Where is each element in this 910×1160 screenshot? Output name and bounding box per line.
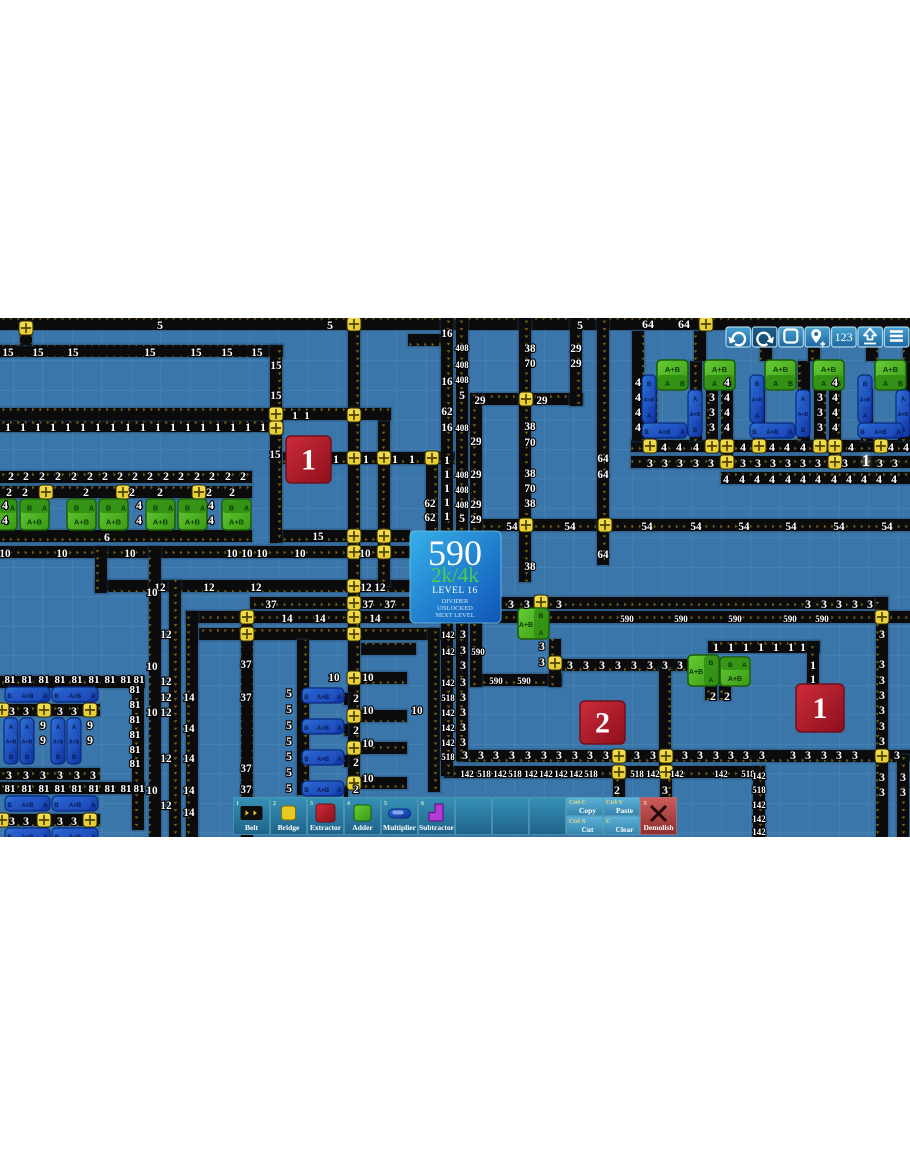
svg-text:B: B bbox=[153, 506, 158, 513]
svg-text:3: 3 bbox=[556, 748, 562, 762]
svg-text:14: 14 bbox=[183, 785, 195, 797]
svg-text:3: 3 bbox=[599, 658, 605, 672]
svg-text:A×B: A×B bbox=[690, 412, 701, 418]
svg-text:3: 3 bbox=[821, 597, 827, 611]
svg-text:1: 1 bbox=[245, 420, 251, 434]
svg-text:4: 4 bbox=[208, 513, 214, 527]
svg-text:29: 29 bbox=[470, 436, 482, 448]
svg-text:3: 3 bbox=[682, 748, 688, 762]
svg-text:408: 408 bbox=[455, 343, 469, 353]
svg-text:A+B: A+B bbox=[883, 365, 899, 374]
svg-text:B: B bbox=[304, 788, 309, 794]
svg-text:3: 3 bbox=[71, 704, 77, 718]
svg-text:518: 518 bbox=[584, 769, 598, 779]
svg-text:10: 10 bbox=[146, 707, 158, 719]
svg-text:29: 29 bbox=[470, 469, 482, 481]
svg-text:518: 518 bbox=[508, 769, 522, 779]
svg-text:1: 1 bbox=[444, 481, 450, 495]
svg-text:5: 5 bbox=[286, 718, 292, 732]
svg-text:1: 1 bbox=[292, 410, 298, 422]
svg-text:142: 142 bbox=[441, 630, 455, 640]
svg-text:14: 14 bbox=[183, 807, 195, 819]
svg-text:6: 6 bbox=[421, 801, 424, 807]
svg-text:29: 29 bbox=[470, 499, 482, 511]
svg-text:38: 38 bbox=[524, 561, 536, 573]
svg-text:2: 2 bbox=[273, 801, 276, 807]
svg-text:A+B: A+B bbox=[712, 365, 728, 374]
svg-text:3: 3 bbox=[770, 456, 776, 470]
svg-text:3: 3 bbox=[815, 456, 821, 470]
svg-text:3: 3 bbox=[879, 785, 885, 799]
svg-text:3: 3 bbox=[677, 658, 683, 672]
svg-text:142: 142 bbox=[554, 769, 568, 779]
svg-text:16: 16 bbox=[441, 376, 453, 388]
svg-text:2: 2 bbox=[240, 469, 246, 483]
svg-text:3: 3 bbox=[709, 390, 715, 404]
svg-text:15: 15 bbox=[190, 347, 202, 359]
svg-text:81: 81 bbox=[39, 783, 50, 795]
svg-text:3: 3 bbox=[631, 658, 637, 672]
svg-text:3: 3 bbox=[879, 673, 885, 687]
svg-text:10: 10 bbox=[256, 548, 268, 560]
svg-text:408: 408 bbox=[455, 485, 469, 495]
svg-text:B: B bbox=[56, 755, 61, 761]
svg-text:3: 3 bbox=[460, 643, 466, 657]
svg-text:1: 1 bbox=[230, 420, 236, 434]
svg-text:A×B: A×B bbox=[658, 430, 671, 436]
svg-text:B: B bbox=[74, 506, 79, 513]
svg-text:A: A bbox=[121, 506, 126, 513]
svg-text:A: A bbox=[168, 506, 173, 513]
svg-text:2: 2 bbox=[209, 469, 215, 483]
svg-text:1: 1 bbox=[800, 640, 806, 654]
svg-text:4: 4 bbox=[815, 472, 821, 486]
svg-text:A×B: A×B bbox=[53, 740, 64, 746]
svg-text:B: B bbox=[728, 662, 733, 669]
svg-text:2: 2 bbox=[23, 469, 29, 483]
svg-text:142: 142 bbox=[670, 769, 684, 779]
svg-text:81: 81 bbox=[134, 783, 145, 795]
svg-text:A×B: A×B bbox=[860, 398, 871, 404]
svg-text:Clear: Clear bbox=[616, 825, 635, 834]
svg-text:B: B bbox=[860, 430, 865, 436]
svg-text:LEVEL 16: LEVEL 16 bbox=[432, 586, 478, 596]
svg-text:3: 3 bbox=[821, 748, 827, 762]
svg-text:37: 37 bbox=[240, 784, 252, 796]
svg-text:1: 1 bbox=[35, 420, 41, 434]
svg-text:A: A bbox=[755, 414, 760, 420]
svg-text:2: 2 bbox=[83, 485, 89, 499]
svg-text:2: 2 bbox=[71, 469, 77, 483]
svg-text:Adder: Adder bbox=[352, 823, 373, 832]
svg-text:81: 81 bbox=[130, 729, 141, 741]
svg-text:81: 81 bbox=[55, 674, 66, 686]
svg-text:2: 2 bbox=[39, 469, 45, 483]
svg-text:590: 590 bbox=[783, 614, 797, 624]
svg-text:A×B: A×B bbox=[69, 740, 80, 746]
svg-text:2: 2 bbox=[6, 485, 12, 499]
svg-text:9: 9 bbox=[40, 718, 46, 732]
svg-text:A: A bbox=[337, 695, 342, 701]
svg-text:4: 4 bbox=[831, 472, 837, 486]
svg-text:1: 1 bbox=[95, 420, 101, 434]
svg-text:81: 81 bbox=[89, 674, 100, 686]
svg-text:3: 3 bbox=[755, 456, 761, 470]
svg-text:38: 38 bbox=[524, 498, 536, 510]
svg-text:4: 4 bbox=[723, 472, 729, 486]
svg-text:A×B: A×B bbox=[22, 740, 33, 746]
svg-text:3: 3 bbox=[57, 768, 63, 782]
svg-text:3: 3 bbox=[634, 748, 640, 762]
svg-text:3: 3 bbox=[662, 658, 668, 672]
svg-text:3: 3 bbox=[894, 748, 900, 762]
svg-text:142: 142 bbox=[569, 769, 583, 779]
svg-text:A: A bbox=[539, 630, 544, 637]
svg-text:10: 10 bbox=[362, 773, 374, 785]
svg-text:A: A bbox=[742, 662, 747, 669]
svg-text:3: 3 bbox=[713, 748, 719, 762]
svg-text:1: 1 bbox=[743, 640, 749, 654]
svg-text:4: 4 bbox=[784, 440, 790, 454]
svg-text:64: 64 bbox=[597, 549, 609, 561]
svg-text:10: 10 bbox=[294, 548, 306, 560]
svg-text:4: 4 bbox=[347, 801, 350, 807]
svg-text:37: 37 bbox=[384, 599, 396, 611]
svg-text:X: X bbox=[643, 801, 648, 807]
svg-text:4: 4 bbox=[754, 472, 760, 486]
svg-text:A: A bbox=[863, 414, 868, 420]
svg-text:B: B bbox=[788, 381, 793, 388]
svg-text:81: 81 bbox=[130, 714, 141, 726]
svg-text:3: 3 bbox=[805, 597, 811, 611]
svg-text:5: 5 bbox=[459, 388, 465, 402]
svg-text:A: A bbox=[244, 506, 249, 513]
svg-text:4: 4 bbox=[832, 375, 838, 389]
svg-text:10: 10 bbox=[56, 548, 68, 560]
svg-text:4: 4 bbox=[635, 420, 641, 434]
svg-text:3: 3 bbox=[900, 785, 906, 799]
svg-text:3: 3 bbox=[460, 627, 466, 641]
svg-text:4: 4 bbox=[876, 472, 882, 486]
svg-text:1: 1 bbox=[80, 420, 86, 434]
svg-text:1: 1 bbox=[392, 452, 398, 466]
svg-text:4: 4 bbox=[861, 472, 867, 486]
svg-text:3: 3 bbox=[71, 814, 77, 828]
svg-text:1: 1 bbox=[444, 495, 450, 509]
svg-text:B: B bbox=[752, 430, 757, 436]
svg-text:A: A bbox=[200, 506, 205, 513]
svg-text:5: 5 bbox=[286, 765, 292, 779]
svg-text:3: 3 bbox=[460, 705, 466, 719]
svg-text:2: 2 bbox=[225, 469, 231, 483]
svg-text:A+B: A+B bbox=[229, 518, 245, 527]
svg-text:12: 12 bbox=[374, 582, 386, 594]
svg-text:B: B bbox=[9, 755, 14, 761]
svg-text:A: A bbox=[665, 381, 670, 388]
svg-text:A: A bbox=[883, 381, 888, 388]
svg-text:408: 408 bbox=[455, 470, 469, 480]
svg-text:3: 3 bbox=[892, 456, 898, 470]
svg-text:15: 15 bbox=[269, 449, 281, 461]
svg-text:142: 142 bbox=[752, 814, 766, 824]
svg-text:A+B: A+B bbox=[74, 518, 90, 527]
svg-text:29: 29 bbox=[570, 343, 582, 355]
svg-text:14: 14 bbox=[369, 613, 381, 625]
svg-text:142: 142 bbox=[460, 769, 474, 779]
svg-text:3: 3 bbox=[525, 748, 531, 762]
svg-text:1: 1 bbox=[333, 452, 339, 466]
svg-text:3: 3 bbox=[508, 597, 514, 611]
svg-text:14: 14 bbox=[281, 613, 293, 625]
svg-text:142: 142 bbox=[752, 800, 766, 810]
svg-text:3: 3 bbox=[740, 456, 746, 470]
svg-text:4: 4 bbox=[724, 420, 730, 434]
svg-text:1: 1 bbox=[215, 420, 221, 434]
svg-text:A: A bbox=[901, 397, 906, 403]
svg-text:A: A bbox=[42, 506, 47, 513]
svg-text:B: B bbox=[304, 695, 309, 701]
svg-text:B: B bbox=[72, 755, 77, 761]
svg-text:B: B bbox=[304, 757, 309, 763]
svg-text:A: A bbox=[43, 803, 48, 809]
svg-text:A×B: A×B bbox=[874, 430, 887, 436]
svg-text:3: 3 bbox=[817, 420, 823, 434]
svg-text:1: 1 bbox=[363, 452, 369, 466]
svg-text:A: A bbox=[821, 381, 826, 388]
svg-text:1: 1 bbox=[236, 801, 239, 807]
svg-text:A: A bbox=[25, 725, 30, 731]
svg-text:4: 4 bbox=[785, 472, 791, 486]
svg-text:Copy: Copy bbox=[579, 806, 596, 815]
svg-text:A: A bbox=[896, 430, 901, 436]
svg-text:10: 10 bbox=[226, 548, 238, 560]
svg-text:142: 142 bbox=[752, 827, 766, 837]
svg-text:62: 62 bbox=[441, 406, 453, 418]
svg-text:4: 4 bbox=[769, 472, 775, 486]
svg-text:81: 81 bbox=[121, 783, 132, 795]
svg-text:A×B: A×B bbox=[69, 694, 82, 700]
svg-text:3: 3 bbox=[6, 768, 12, 782]
svg-text:62: 62 bbox=[424, 512, 436, 524]
svg-text:15: 15 bbox=[144, 347, 156, 359]
svg-text:590: 590 bbox=[815, 614, 829, 624]
svg-text:38: 38 bbox=[524, 343, 536, 355]
svg-text:3: 3 bbox=[900, 770, 906, 784]
svg-text:81: 81 bbox=[130, 684, 141, 696]
svg-text:3: 3 bbox=[74, 768, 80, 782]
svg-text:14: 14 bbox=[183, 692, 195, 704]
svg-text:12: 12 bbox=[160, 676, 172, 688]
svg-text:123: 123 bbox=[835, 330, 853, 344]
svg-text:81: 81 bbox=[89, 783, 100, 795]
svg-text:6: 6 bbox=[104, 530, 110, 544]
svg-text:4: 4 bbox=[676, 440, 682, 454]
svg-text:2: 2 bbox=[22, 485, 28, 499]
svg-text:A: A bbox=[801, 397, 806, 403]
svg-text:5: 5 bbox=[327, 318, 333, 332]
svg-text:2: 2 bbox=[353, 755, 359, 769]
svg-text:10: 10 bbox=[0, 548, 11, 560]
svg-text:3: 3 bbox=[693, 456, 699, 470]
svg-text:A×B: A×B bbox=[752, 398, 763, 404]
svg-text:3: 3 bbox=[709, 405, 715, 419]
svg-text:4: 4 bbox=[740, 440, 746, 454]
svg-text:5: 5 bbox=[157, 318, 163, 332]
svg-text:2: 2 bbox=[178, 469, 184, 483]
svg-text:2: 2 bbox=[595, 707, 610, 740]
svg-text:A+B: A+B bbox=[689, 669, 703, 676]
svg-text:2k/4k: 2k/4k bbox=[431, 563, 479, 587]
svg-text:A: A bbox=[10, 506, 15, 513]
svg-text:2: 2 bbox=[724, 689, 730, 703]
svg-text:54: 54 bbox=[881, 521, 893, 533]
svg-text:4: 4 bbox=[635, 375, 641, 389]
svg-text:A: A bbox=[773, 381, 778, 388]
svg-text:4: 4 bbox=[800, 440, 806, 454]
svg-text:81: 81 bbox=[5, 674, 16, 686]
svg-text:38: 38 bbox=[524, 468, 536, 480]
svg-text:14: 14 bbox=[183, 723, 195, 735]
svg-text:3: 3 bbox=[785, 456, 791, 470]
svg-text:54: 54 bbox=[641, 521, 653, 533]
svg-text:37: 37 bbox=[265, 599, 277, 611]
svg-text:A×B: A×B bbox=[317, 695, 330, 701]
svg-text:B: B bbox=[54, 803, 59, 809]
svg-text:Demolish: Demolish bbox=[644, 823, 675, 832]
svg-text:10: 10 bbox=[146, 785, 158, 797]
svg-text:3: 3 bbox=[879, 627, 885, 641]
svg-text:NEXT LEVEL: NEXT LEVEL bbox=[435, 612, 474, 619]
svg-text:4: 4 bbox=[724, 390, 730, 404]
svg-text:1: 1 bbox=[185, 420, 191, 434]
svg-text:Paste: Paste bbox=[616, 806, 634, 815]
svg-text:12: 12 bbox=[160, 753, 172, 765]
svg-text:A×B: A×B bbox=[6, 740, 17, 746]
svg-text:12: 12 bbox=[160, 692, 172, 704]
svg-text:1: 1 bbox=[5, 420, 11, 434]
svg-text:2: 2 bbox=[614, 783, 620, 797]
svg-text:1: 1 bbox=[20, 420, 26, 434]
svg-text:14: 14 bbox=[314, 613, 326, 625]
svg-text:4: 4 bbox=[724, 405, 730, 419]
svg-text:1: 1 bbox=[304, 410, 310, 422]
svg-text:1: 1 bbox=[810, 672, 816, 686]
svg-text:B: B bbox=[25, 755, 30, 761]
svg-text:5: 5 bbox=[286, 734, 292, 748]
svg-text:3: 3 bbox=[662, 783, 668, 797]
svg-text:5: 5 bbox=[286, 781, 292, 795]
svg-text:3: 3 bbox=[556, 597, 562, 611]
svg-text:10: 10 bbox=[241, 548, 253, 560]
svg-text:3: 3 bbox=[879, 770, 885, 784]
svg-text:B: B bbox=[801, 428, 806, 434]
svg-text:3: 3 bbox=[759, 748, 765, 762]
svg-text:3: 3 bbox=[728, 748, 734, 762]
svg-text:4: 4 bbox=[891, 472, 897, 486]
svg-text:A×B: A×B bbox=[317, 788, 330, 794]
svg-text:4: 4 bbox=[208, 498, 214, 512]
svg-text:3: 3 bbox=[23, 768, 29, 782]
svg-text:54: 54 bbox=[833, 521, 845, 533]
svg-text:12: 12 bbox=[160, 629, 172, 641]
svg-text:A×B: A×B bbox=[317, 726, 330, 732]
svg-text:5: 5 bbox=[384, 801, 387, 807]
svg-text:3: 3 bbox=[805, 748, 811, 762]
svg-text:B: B bbox=[647, 382, 652, 388]
svg-text:15: 15 bbox=[2, 347, 14, 359]
svg-text:9: 9 bbox=[40, 733, 46, 747]
svg-text:518: 518 bbox=[630, 769, 644, 779]
svg-text:10: 10 bbox=[146, 587, 158, 599]
svg-text:81: 81 bbox=[39, 674, 50, 686]
svg-text:3: 3 bbox=[836, 748, 842, 762]
svg-text:A: A bbox=[9, 725, 14, 731]
svg-text:81: 81 bbox=[22, 674, 33, 686]
svg-text:1: 1 bbox=[110, 420, 116, 434]
svg-text:3: 3 bbox=[57, 704, 63, 718]
svg-text:3: 3 bbox=[23, 814, 29, 828]
svg-text:10: 10 bbox=[362, 672, 374, 684]
svg-text:142: 142 bbox=[441, 647, 455, 657]
svg-text:B: B bbox=[680, 381, 685, 388]
svg-text:15: 15 bbox=[67, 347, 79, 359]
svg-text:3: 3 bbox=[310, 801, 313, 807]
svg-text:142: 142 bbox=[493, 769, 507, 779]
svg-text:70: 70 bbox=[524, 483, 536, 495]
svg-text:29: 29 bbox=[570, 358, 582, 370]
svg-text:4: 4 bbox=[769, 440, 775, 454]
svg-text:142: 142 bbox=[714, 769, 728, 779]
svg-text:4: 4 bbox=[635, 405, 641, 419]
svg-text:3: 3 bbox=[647, 658, 653, 672]
svg-text:A+B: A+B bbox=[821, 365, 837, 374]
svg-text:3: 3 bbox=[879, 703, 885, 717]
svg-text:3: 3 bbox=[790, 748, 796, 762]
svg-text:A: A bbox=[72, 725, 77, 731]
svg-text:12: 12 bbox=[360, 582, 372, 594]
svg-text:A×B: A×B bbox=[21, 803, 34, 809]
svg-text:16: 16 bbox=[441, 328, 453, 340]
svg-text:1: 1 bbox=[301, 444, 316, 477]
svg-text:2: 2 bbox=[206, 485, 212, 499]
svg-text:A+B: A+B bbox=[519, 622, 533, 629]
svg-text:81: 81 bbox=[130, 758, 141, 770]
svg-text:3: 3 bbox=[460, 735, 466, 749]
svg-text:B: B bbox=[106, 506, 111, 513]
svg-text:A+B: A+B bbox=[106, 518, 122, 527]
svg-text:142: 142 bbox=[441, 723, 455, 733]
svg-text:B: B bbox=[863, 382, 868, 388]
svg-text:A×B: A×B bbox=[898, 412, 909, 418]
svg-text:3: 3 bbox=[879, 719, 885, 733]
svg-text:2: 2 bbox=[229, 485, 235, 499]
svg-text:4: 4 bbox=[832, 420, 838, 434]
svg-text:3: 3 bbox=[90, 768, 96, 782]
svg-text:2: 2 bbox=[353, 723, 359, 737]
svg-text:3: 3 bbox=[23, 704, 29, 718]
svg-text:1: 1 bbox=[444, 509, 450, 523]
svg-text:A×B: A×B bbox=[644, 398, 655, 404]
svg-text:3: 3 bbox=[879, 734, 885, 748]
svg-text:142: 142 bbox=[441, 708, 455, 718]
svg-text:38: 38 bbox=[524, 421, 536, 433]
svg-text:4: 4 bbox=[2, 498, 8, 512]
svg-text:A+B: A+B bbox=[665, 365, 681, 374]
svg-text:4: 4 bbox=[848, 440, 854, 454]
svg-text:81: 81 bbox=[105, 783, 116, 795]
svg-text:3: 3 bbox=[662, 456, 668, 470]
svg-text:408: 408 bbox=[455, 360, 469, 370]
